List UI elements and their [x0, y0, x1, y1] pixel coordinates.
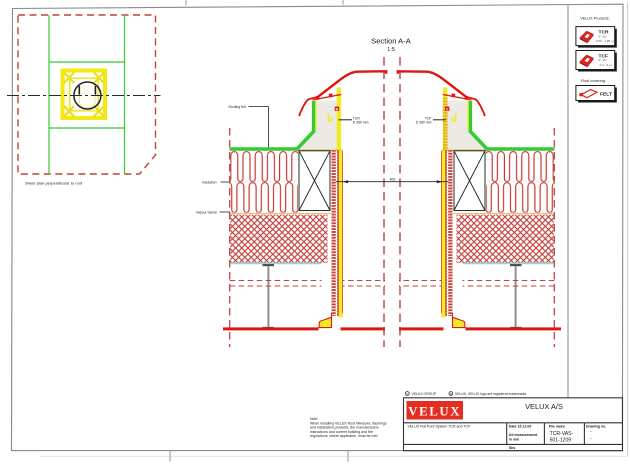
svg-text:VELUX: VELUX — [408, 404, 461, 418]
svg-text:VELUX A/S: VELUX A/S — [525, 402, 563, 411]
svg-text:VELUX GROUP: VELUX GROUP — [412, 392, 437, 396]
svg-text:Note:: Note: — [310, 417, 318, 421]
svg-text:in mm: in mm — [509, 437, 519, 441]
svg-text:Roof covering:: Roof covering: — [581, 79, 605, 83]
svg-text:regulations, where applicable,: regulations, where applicable, must be m… — [310, 434, 377, 438]
svg-text:D 350 mm: D 350 mm — [353, 121, 369, 125]
svg-text:0°-15°: 0°-15° — [599, 34, 608, 38]
svg-text:Sks: Sks — [509, 446, 515, 450]
svg-text:VELUX, VELUX logo are register: VELUX, VELUX logo are registered tradema… — [455, 392, 527, 396]
svg-text:FELT: FELT — [600, 92, 612, 98]
svg-text:Insulation: Insulation — [202, 180, 217, 184]
svg-text:R: R — [450, 392, 452, 396]
svg-text:-: - — [590, 436, 592, 442]
svg-text:0.85 - 1.85 m: 0.85 - 1.85 m — [596, 39, 614, 43]
svg-text:1:5: 1:5 — [387, 47, 395, 53]
svg-text:0.4 - 6 m: 0.4 - 6 m — [600, 63, 612, 67]
svg-text:VELUX Products:: VELUX Products: — [580, 17, 610, 21]
svg-text:Date 15.12.09: Date 15.12.09 — [509, 424, 532, 428]
svg-text:Sheer plan perpendicular to ro: Sheer plan perpendicular to roof — [25, 181, 83, 186]
svg-text:C: C — [406, 392, 408, 396]
svg-text:Drawing no.: Drawing no. — [586, 424, 606, 428]
svg-text:-: - — [590, 429, 592, 435]
svg-text:400: 400 — [390, 177, 396, 181]
svg-text:Section A-A: Section A-A — [371, 37, 412, 46]
svg-text:0°-15°: 0°-15° — [599, 58, 608, 62]
svg-text:501-1209: 501-1209 — [550, 437, 572, 443]
svg-text:File name: File name — [549, 424, 565, 428]
svg-text:Vapour barrier: Vapour barrier — [196, 210, 218, 214]
svg-text:D 350 mm: D 350 mm — [416, 121, 432, 125]
svg-text:VELUX Flat Roof System TCR and: VELUX Flat Roof System TCR and TCF — [408, 425, 472, 429]
svg-text:TCR-VAS-: TCR-VAS- — [550, 431, 574, 437]
svg-text:Roofing felt: Roofing felt — [229, 105, 246, 109]
